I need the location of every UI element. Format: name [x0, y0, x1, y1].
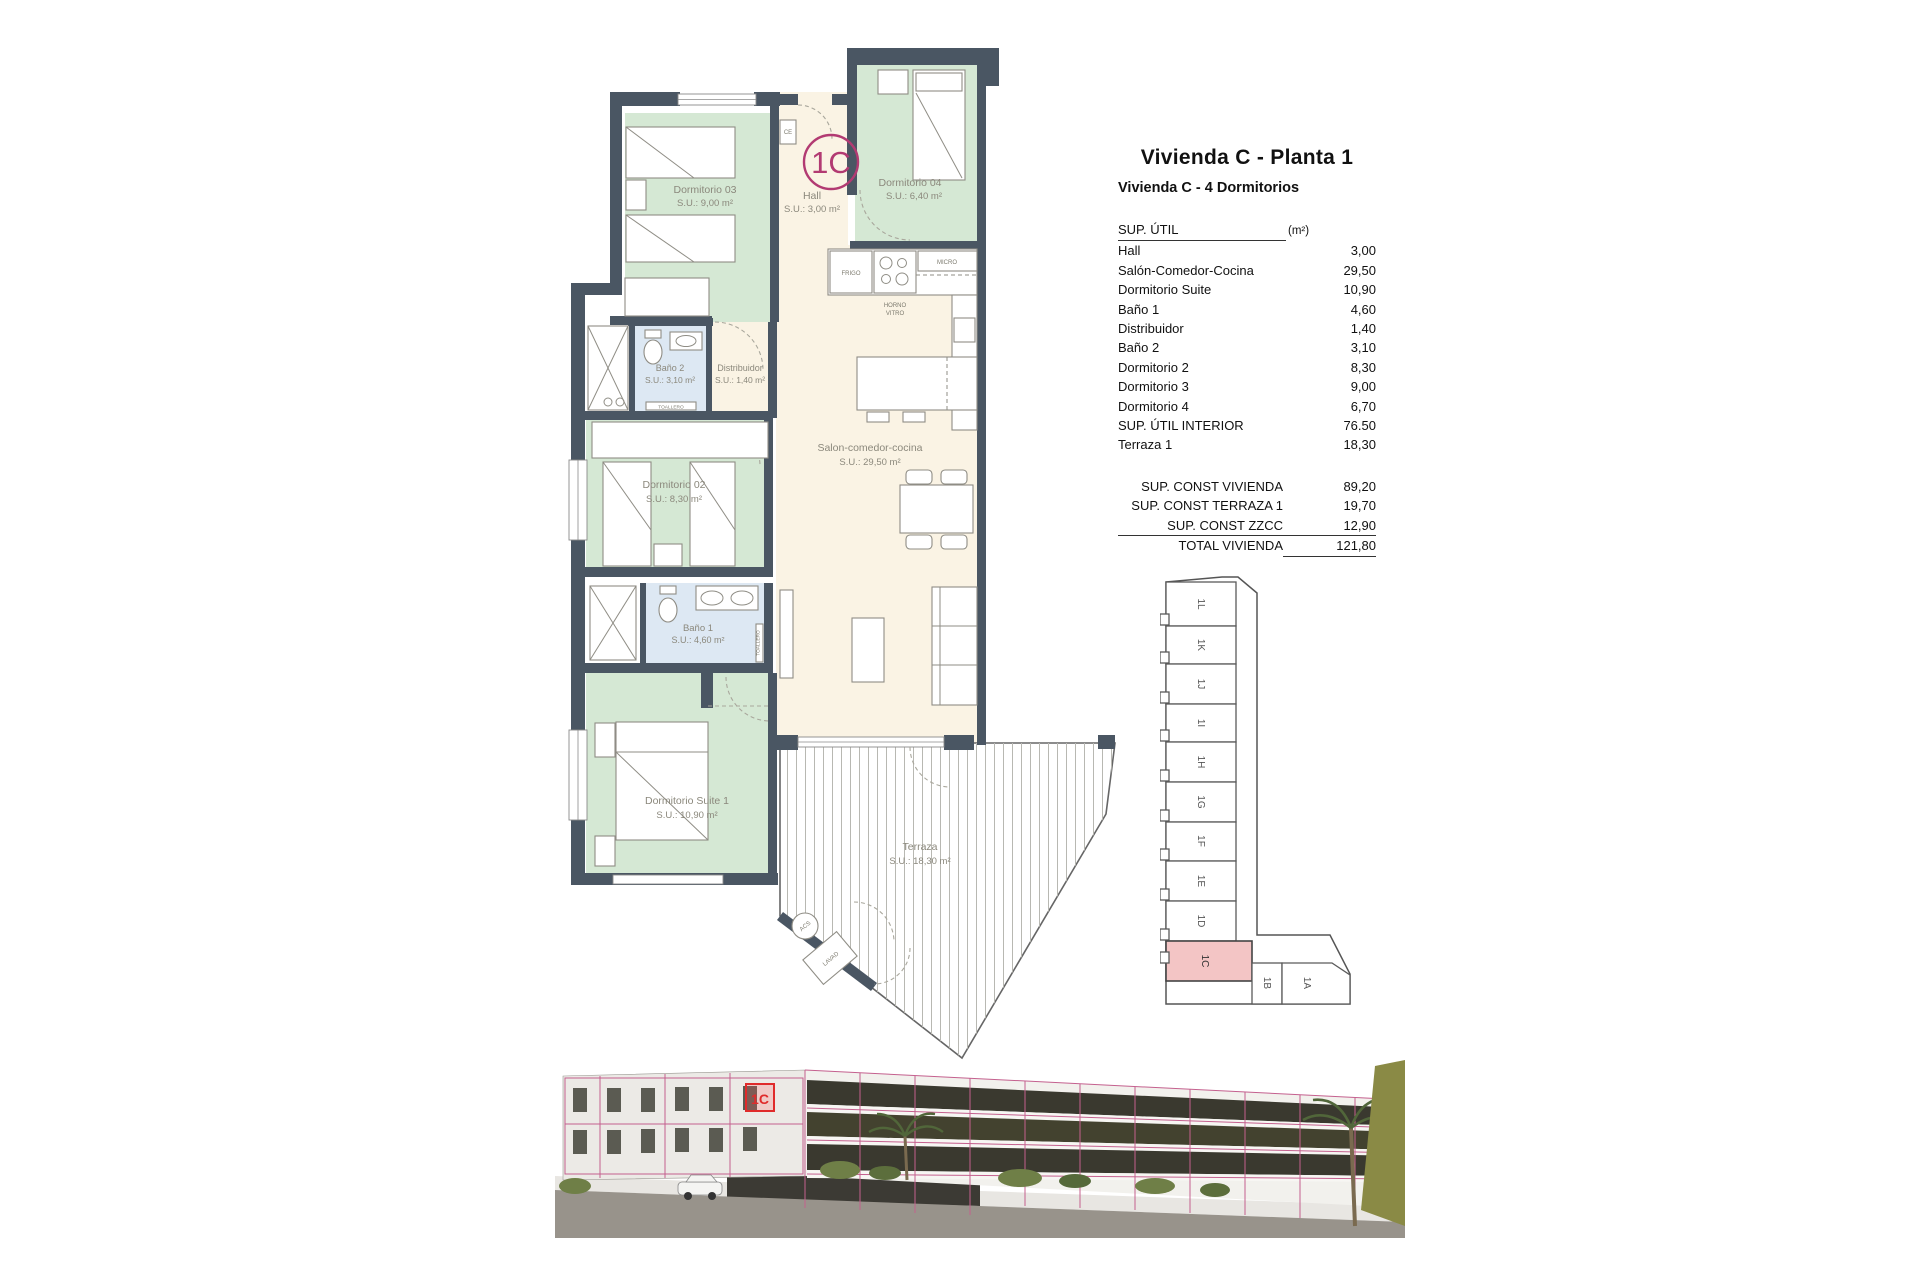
svg-text:S.U.: 1,40 m²: S.U.: 1,40 m²	[715, 375, 765, 385]
table-row: Dormitorio Suite10,90	[1118, 280, 1376, 299]
svg-text:S.U.: 29,50 m²: S.U.: 29,50 m²	[839, 457, 900, 468]
room-label: Terraza	[902, 841, 937, 853]
svg-text:S.U.: 4,60 m²: S.U.: 4,60 m²	[671, 635, 724, 645]
svg-text:S.U.: 18,30 m²: S.U.: 18,30 m²	[889, 856, 950, 867]
key-unit-label: 1L	[1195, 598, 1206, 610]
toallero-label: TOALLERO	[658, 405, 684, 411]
room-label: Dormitorio Suite 1	[645, 795, 729, 807]
hillside	[1361, 1060, 1405, 1226]
unit-marker-label: 1C	[751, 1091, 769, 1107]
surface-table-summary: SUP. CONST VIVIENDA89,20 SUP. CONST TERR…	[1118, 477, 1376, 557]
key-unit-label: 1E	[1195, 875, 1206, 888]
unit-badge-label: 1C	[811, 145, 851, 180]
table-row: Distribuidor1,40	[1118, 319, 1376, 338]
sofa-icon	[932, 587, 977, 705]
shower-icon-lower	[590, 586, 636, 660]
room-label: Salon-comedor-cocina	[817, 442, 922, 454]
summary-row: SUP. CONST VIVIENDA89,20	[1118, 477, 1376, 496]
svg-text:S.U.: 3,10 m²: S.U.: 3,10 m²	[645, 375, 695, 385]
frigo-label: FRIGO	[842, 271, 861, 277]
room-label: Distribuidor	[717, 363, 763, 373]
table-row: Baño 23,10	[1118, 338, 1376, 357]
svg-text:S.U.: 9,00 m²: S.U.: 9,00 m²	[677, 198, 733, 209]
key-unit-label: 1F	[1195, 835, 1206, 847]
key-unit-label: 1G	[1195, 795, 1206, 809]
room-label: Dormitorio 04	[878, 177, 941, 189]
surface-table-header: SUP. ÚTIL (m²)	[1118, 220, 1376, 241]
surface-table-header-unit: (m²)	[1286, 222, 1309, 241]
svg-text:S.U.: 6,40 m²: S.U.: 6,40 m²	[886, 191, 942, 202]
key-unit-label-highlighted: 1C	[1199, 955, 1210, 968]
summary-row-total: TOTAL VIVIENDA121,80	[1118, 535, 1376, 556]
table-row: Baño 14,60	[1118, 300, 1376, 319]
svg-text:S.U.: 3,00 m²: S.U.: 3,00 m²	[784, 204, 840, 215]
key-unit-label: 1B	[1261, 977, 1272, 990]
room-label: Baño 1	[683, 623, 713, 634]
unit-marker: 1C	[746, 1084, 774, 1111]
toallero-label: TOALLERO	[756, 630, 762, 656]
key-unit-label: 1H	[1195, 756, 1206, 769]
table-row-subtotal: SUP. ÚTIL INTERIOR76.50	[1118, 416, 1376, 435]
room-label: Dormitorio 03	[673, 184, 736, 196]
key-unit-label: 1K	[1195, 639, 1206, 652]
ce-label: CE	[784, 130, 792, 136]
surface-table-header-label: SUP. ÚTIL	[1118, 220, 1286, 241]
floor-plan: ACS LAVAD	[558, 30, 1118, 1070]
plan-sheet: Vivienda C - Planta 1 Vivienda C - 4 Dor…	[0, 0, 1920, 1280]
coffee-table-icon	[852, 618, 884, 682]
svg-text:S.U.: 8,30 m²: S.U.: 8,30 m²	[646, 494, 702, 505]
horno-label: HORNO	[884, 303, 907, 309]
summary-row: SUP. CONST TERRAZA 119,70	[1118, 496, 1376, 515]
table-row: Dormitorio 28,30	[1118, 358, 1376, 377]
table-row: Hall3,00	[1118, 241, 1376, 260]
tv-unit-icon	[780, 590, 793, 678]
building-render: 1C	[555, 1058, 1405, 1238]
key-unit-label: 1J	[1195, 679, 1206, 690]
key-unit-label: 1I	[1195, 719, 1206, 727]
shower-icon-upper	[588, 326, 628, 410]
table-row: Dormitorio 46,70	[1118, 397, 1376, 416]
surface-table: SUP. ÚTIL (m²) Hall3,00 Salón-Comedor-Co…	[1118, 220, 1376, 557]
key-unit-label: 1A	[1301, 977, 1312, 990]
room-label: Baño 2	[656, 363, 685, 373]
room-label: Dormitorio 02	[642, 479, 705, 491]
key-unit-label: 1D	[1195, 915, 1206, 928]
svg-text:S.U.: 10,90 m²: S.U.: 10,90 m²	[656, 810, 717, 821]
table-row: Dormitorio 39,00	[1118, 377, 1376, 396]
key-unit	[1282, 963, 1350, 1004]
page-subtitle: Vivienda C - 4 Dormitorios	[1118, 180, 1376, 196]
key-plan: 1L 1K 1J 1I 1H 1G 1F 1E 1D 1C 1B 1A	[1160, 574, 1360, 1016]
info-panel: Vivienda C - Planta 1 Vivienda C - 4 Dor…	[1118, 146, 1376, 557]
vitro-label: VITRO	[886, 311, 905, 317]
table-row: Terraza 118,30	[1118, 435, 1376, 454]
micro-label: MICRO	[937, 260, 957, 266]
room-label: Hall	[803, 190, 821, 202]
page-title: Vivienda C - Planta 1	[1118, 146, 1376, 170]
terrace: ACS LAVAD	[780, 743, 1115, 1058]
table-row: Salón-Comedor-Cocina29,50	[1118, 261, 1376, 280]
summary-row: SUP. CONST ZZCC12,90	[1118, 516, 1376, 535]
